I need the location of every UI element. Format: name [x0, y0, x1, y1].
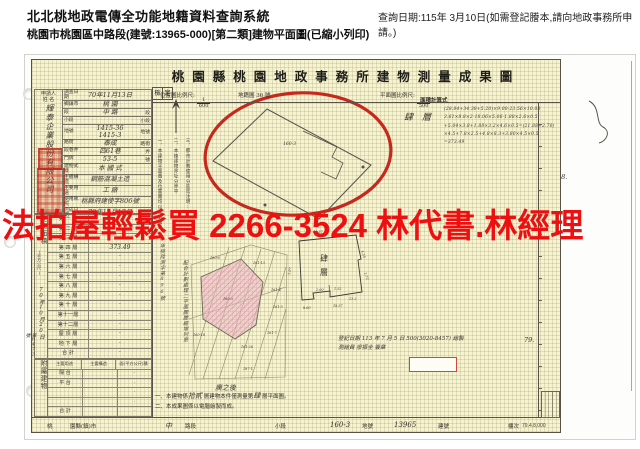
floor-label: 第 十 層 — [48, 301, 89, 310]
area-row: 第 六 層· — [48, 263, 151, 273]
floor-area-value: · — [89, 311, 151, 320]
annex-use: 合 計 — [48, 407, 83, 416]
info-row: 主體構造鋼筋混凝土造 — [63, 175, 152, 186]
info-unit: 路街 — [139, 140, 151, 147]
info-value: 四61巷 — [81, 148, 139, 155]
scanned-page: 78. 桃園縣桃園地政事務所建物測量成果圖 申請人 姓 名 輝泰企業股份有限公司… — [24, 54, 636, 440]
info-value: 桃 園 — [81, 101, 139, 108]
floor-area-value: · — [89, 282, 151, 291]
info-value: 53-5 — [81, 156, 139, 163]
cadastral-sheet-note: 地籍圖 36 號 — [238, 91, 271, 99]
annex-row: · — [48, 398, 151, 408]
annex-structure — [83, 407, 118, 416]
scale-header-strip: 位置圖比例尺:1600 地籍圖 36 號 平面圖比例尺:1500 面積計算式 檢… — [152, 87, 560, 103]
annex-row: 陽 台· — [48, 369, 151, 379]
floor-label: 第 七 層 — [48, 273, 89, 282]
info-unit: 弄 — [139, 148, 151, 155]
floorplan-dimension: 13.2 — [349, 297, 357, 301]
floor-label: 第十二層 — [48, 321, 89, 330]
floorplan-dimension: 5.97 — [287, 266, 293, 275]
calc-line: +5.04×3.8+1.88×3.2×4.6×0.5=(21.88+2.70) — [444, 123, 546, 131]
annex-row: · — [48, 388, 151, 398]
red-outline-box — [409, 357, 457, 372]
floor-area-value: · — [89, 292, 151, 301]
area-row: 第十二層· — [48, 321, 151, 331]
annex-area: · — [118, 398, 151, 407]
floor-area-value: · — [89, 330, 151, 339]
info-value: 泰成 — [81, 140, 139, 147]
info-label: 地號 — [63, 129, 81, 134]
parcel-bottom-row: 79.4.8,000 桃園縣(鎮)市中路段小段160-3地號13965建號樓次 — [32, 417, 560, 434]
received-date: 70年10月20日 — [37, 287, 45, 340]
parcel-cell: 160-3 — [330, 421, 350, 429]
annex-use — [48, 398, 83, 407]
area-row: 第 七 層· — [48, 273, 151, 283]
vertical-hand-note: 配合計劃處理二平面圖謄繪增列章 — [182, 260, 189, 375]
annex-structure — [83, 379, 118, 388]
annex-use — [48, 388, 83, 397]
lot-number: 161-26 — [241, 345, 254, 349]
info-value: 中 路 — [81, 109, 139, 116]
annex-side-strip: 附屬建物 — [35, 360, 48, 416]
floor-label: 合 計 — [48, 349, 89, 358]
margin-mark-79: 79. — [524, 336, 534, 344]
bottom-notes: 一、本建物係拾貳 層建物本件僅測量第肆 層平面圖。 二、本成果圖係以電腦繪製而成… — [155, 390, 290, 413]
annex-area: · — [118, 388, 151, 397]
calc-floor-label: 肆層 — [404, 110, 440, 123]
info-label: 小段 — [63, 118, 81, 123]
annex-table: 附屬建物 主要用途主要構造面(平方公尺)積 陽 台·平 台···合 計· — [34, 359, 152, 417]
info-unit: 號 — [139, 156, 151, 163]
annex-area: · — [118, 379, 151, 388]
area-side-sublabel: (平方公尺) — [36, 249, 42, 275]
parcel-cell: 路段 — [185, 422, 196, 430]
info-label: 鄉鎮市 — [63, 102, 81, 107]
info-row: 建物式樣本 國 式 — [63, 164, 152, 175]
parcel-cell: 小段 — [275, 422, 286, 430]
info-label: 段 — [63, 110, 81, 115]
bottom-note-1: 一、本建物係拾貳 層建物本件僅測量第肆 層平面圖。 — [155, 390, 290, 403]
floorplan-floor-char: 肆 — [320, 253, 328, 263]
area-row: 地 下 層· — [48, 340, 151, 350]
annex-area: · — [118, 369, 151, 378]
pen-scribble — [581, 97, 625, 147]
annex-use: 平 台 — [48, 379, 83, 388]
floorplan-floor-char: 層 — [320, 268, 328, 277]
right-ruler-column — [538, 103, 560, 417]
area-row: 第十一層· — [48, 311, 151, 321]
floor-area-value: · — [89, 253, 151, 262]
floor-label: 第 六 層 — [48, 263, 89, 272]
registration-note: 登記日期 113 年 7 月 5 日 500(3020-8457) 繪製 測繪員… — [338, 335, 464, 354]
info-row: 門牌53-5號 — [63, 156, 152, 164]
floor-label: 地 下 層 — [48, 340, 89, 349]
parcel-cell: 中 — [165, 421, 172, 431]
info-row: 地號1415-36 1415-3地號 — [63, 125, 152, 140]
parcel-cell: 園縣(鎮)市 — [70, 422, 96, 430]
area-row: 第 九 層· — [48, 292, 151, 302]
parcel-cell: 桃 — [47, 422, 53, 430]
info-unit: 段 — [139, 109, 151, 116]
info-label: 建物式樣 — [63, 164, 81, 174]
red-seal — [38, 148, 63, 170]
certification-stamp-box — [541, 391, 560, 418]
parcel-cell: 樓次 — [508, 422, 519, 430]
bottom-note-2: 二、本成果圖係以電腦繪製而成。 — [155, 403, 290, 413]
floor-area-value: · — [89, 301, 151, 310]
area-calc-label: 面積計算式 — [420, 96, 448, 104]
annex-structure — [83, 388, 118, 397]
floorplan-dimension: 8.60 — [303, 306, 311, 310]
calc-line: ×4.5+7.8×2.5+4.8×8.3+3.80×4.5×0.5 — [444, 131, 546, 139]
annex-structure — [83, 369, 118, 378]
info-label: 段巷弄 — [63, 148, 81, 153]
floor-area-value: · — [89, 273, 151, 282]
info-label: 主體構造 — [63, 175, 81, 185]
lot-number: 161-5 — [273, 305, 283, 309]
info-label: 門牌 — [63, 156, 81, 161]
watermark-text: 法拍屋輕鬆買 2266-3524 林代書.林經理 — [2, 199, 640, 247]
form-print-code: 79.4.8,000 — [522, 423, 546, 429]
calc-line: =373.49 — [444, 139, 546, 147]
lot-number: 187-1 — [243, 367, 253, 371]
lot-number: 161-4 — [271, 288, 281, 292]
lot-number: 161-13 — [253, 261, 265, 265]
info-value: 本 國 式 — [81, 165, 139, 172]
floor-area-value: · — [89, 340, 151, 349]
annex-header: 面(平方公尺)積 — [116, 360, 151, 369]
screen: 北北桃地政電傳全功能地籍資料查詢系統 查詢日期:115年 3月10日(如需登記謄… — [0, 0, 640, 449]
annex-structure — [83, 398, 118, 407]
lot-number: 160-3 — [223, 297, 233, 301]
area-row: 合 計· — [48, 349, 151, 358]
annex-row: 平 台· — [48, 379, 151, 389]
vertical-hand-note: 70年桃陞測字第896號 — [159, 230, 166, 345]
query-date-note: 查詢日期:115年 3月10日(如需登記謄本,請向地政事務所申請。) — [378, 9, 640, 39]
applicant-box: 申請人 姓 名 輝泰企業股份有限公司 — [34, 89, 63, 214]
parcel-cell: 13965 — [394, 421, 416, 429]
info-value: 鋼筋混凝土造 — [81, 176, 139, 183]
floor-area-value: · — [89, 321, 151, 330]
info-row: 段中 路段 — [63, 109, 152, 117]
info-value: 1415-36 1415-3 — [81, 125, 139, 139]
annex-side-label: 附屬建物 — [38, 360, 48, 390]
area-calculation: (28.84+34.38+5.20)×9.00-23.56×10.083.61×… — [444, 106, 546, 148]
annex-header: 主要構造 — [82, 360, 116, 369]
floor-area-value: · — [89, 263, 151, 272]
info-row: 主要用途工 廠 — [63, 186, 152, 197]
annex-area: · — [118, 407, 151, 416]
info-label: 主要用途 — [63, 186, 81, 196]
lot-number: 160-6 — [210, 256, 221, 260]
floor-area-value: · — [89, 349, 151, 358]
floor-label: 第 八 層 — [48, 282, 89, 291]
calc-line: (28.84+34.38+5.20)×9.00-23.56×10.08 — [444, 106, 546, 114]
parcel-cell: 建號 — [438, 422, 449, 430]
lot-number: 161-7 — [267, 331, 278, 335]
document-subtitle: 桃園市桃園區中路段(建號:13965-000)[第二類]建物平面圖(已縮小列印) — [27, 26, 369, 42]
info-unit: 地號 — [139, 128, 151, 135]
floor-label: 第 五 層 — [48, 253, 89, 262]
calc-line: 3.61×8.8×2-18.06×5.06-1.88×2.6×0.5 — [444, 114, 546, 122]
floorplan-dimension: 2.00 — [315, 288, 324, 292]
area-row: 屋 頂 層· — [48, 330, 151, 340]
area-row: 第 八 層· — [48, 282, 151, 292]
lot-number: 160-18 — [193, 333, 206, 337]
floor-label: 屋 頂 層 — [48, 330, 89, 339]
parcel-cell: 地號 — [362, 422, 373, 430]
floor-label: 第十一層 — [48, 311, 89, 320]
info-label: 調查日期 — [63, 90, 81, 100]
info-value: 70年11月13日 — [81, 92, 139, 99]
location-scale-label: 位置圖比例尺:1600 — [160, 91, 212, 109]
form-title: 桃園縣桃園地政事務所建物測量成果圖 — [136, 66, 556, 85]
area-row: 第 十 層· — [48, 301, 151, 311]
building-info-table: 調查日期70年11月13日鄉鎮市桃 園段中 路段小段小段地號1415-36 14… — [62, 89, 152, 214]
floorplan-dimension: 1.52 — [334, 287, 342, 291]
circle-lot-number: 160-3 — [283, 141, 296, 147]
system-title: 北北桃地政電傳全功能地籍資料查詢系統 — [27, 6, 270, 25]
area-row: 第 五 層· — [48, 253, 151, 263]
applicant-header-2: 姓 名 — [35, 97, 62, 103]
floor-label: 第 九 層 — [48, 292, 89, 301]
info-label: 路街 — [63, 140, 81, 145]
annex-header: 主要用途 — [48, 360, 82, 369]
info-unit: 小段 — [139, 117, 151, 124]
floorplan-dimension: 2.72 — [363, 271, 370, 280]
received-number: 第6473號 — [24, 333, 36, 358]
floorplan-dimension: 18.37 — [333, 304, 344, 308]
annex-use: 陽 台 — [48, 369, 83, 378]
annex-row: 合 計· — [48, 407, 151, 416]
info-value: 工 廠 — [81, 187, 139, 194]
